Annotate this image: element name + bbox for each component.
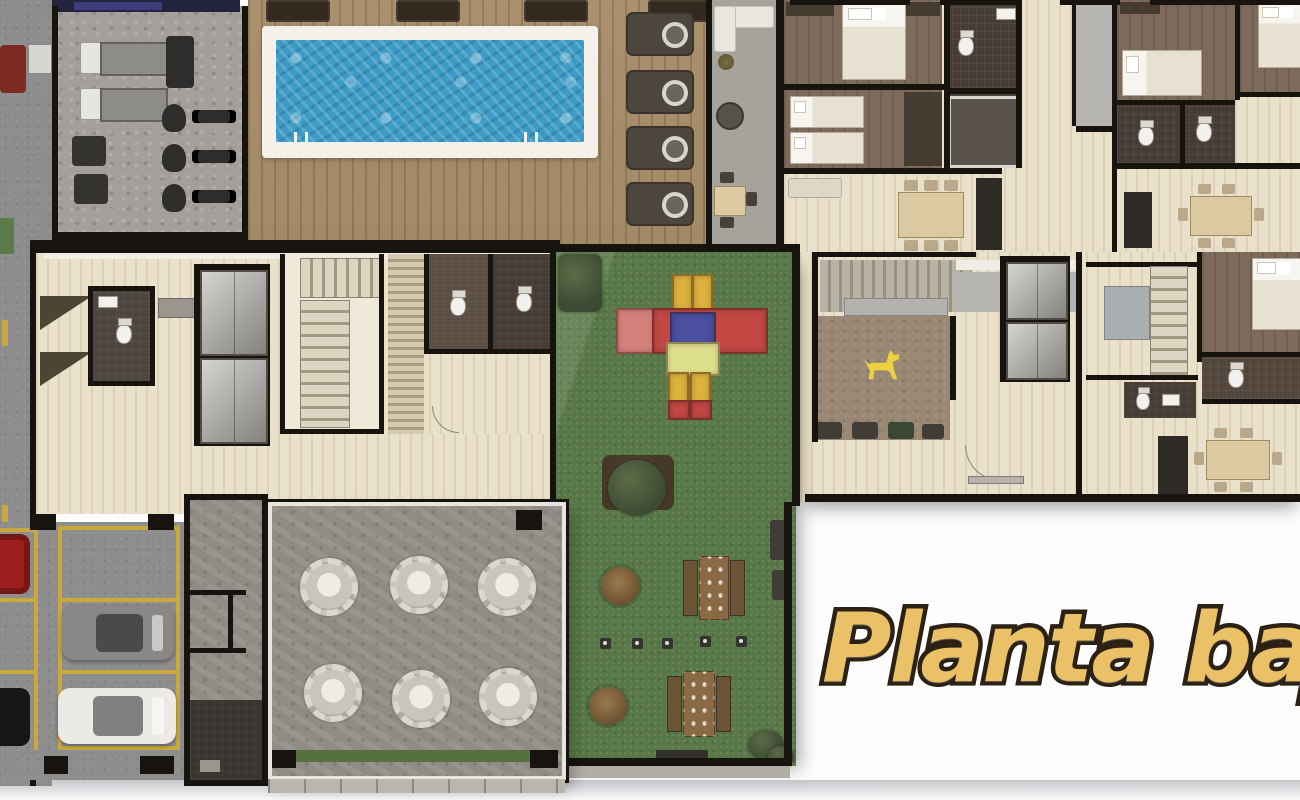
banquet-table [390,556,448,614]
chair [1272,452,1282,465]
chair [1222,184,1235,194]
sidewalk-tiles [268,779,565,793]
pier [44,756,68,774]
service-block [184,494,268,786]
bay-line [0,670,38,674]
door-leaf [968,476,1024,484]
banquet-table [300,558,358,616]
chair [1254,208,1264,221]
event-hall [268,502,566,780]
toilet [116,324,132,344]
sidewalk [560,766,790,778]
chair [720,217,734,228]
pool-deck [248,0,710,244]
grass-strip [274,750,556,762]
wall [184,780,268,786]
sun-lounger [524,0,588,22]
pier [148,514,174,530]
wall [280,254,285,434]
bed [1252,258,1300,330]
wall [812,252,818,442]
wall [190,648,246,653]
sofa [714,6,736,52]
plant [718,54,734,70]
pier [530,750,558,768]
bay-line [58,746,180,750]
treadmill-belt [100,42,168,76]
stairs [1150,266,1188,376]
corridor [1076,0,1112,126]
pier [30,514,56,530]
lane-mark [2,320,8,346]
bed [1258,4,1300,68]
play-bar-pink [616,308,656,354]
wall [556,244,800,252]
wall [150,286,155,386]
wall [1117,163,1300,169]
chair [924,240,938,251]
toilet [450,296,466,316]
weight-rack [166,36,194,88]
sink [1162,394,1180,406]
apartments-top [784,0,1300,252]
shower [948,96,1022,168]
stairs-lower-flight [300,300,350,428]
gym-machine [74,174,108,204]
elevator-cab [200,270,268,356]
picnic-table [683,671,715,737]
wall [1016,0,1022,168]
sun-lounger [626,12,694,56]
play-panel-lime [666,342,720,376]
wall [184,494,268,500]
bathroom [1202,357,1300,399]
sofa [788,178,842,198]
chair [1194,452,1204,465]
wardrobe [904,92,942,166]
picnic-bench [667,676,682,732]
wall [1086,375,1198,380]
chair [904,240,918,251]
bathroom [1124,382,1196,418]
dining-table [1190,196,1252,236]
pool-ladder [294,132,308,154]
dumbbell-bench [162,144,186,172]
toilet [1196,122,1212,142]
pier [516,510,542,530]
single-bed [790,132,864,164]
banquet-table [304,664,362,722]
wall [560,758,792,766]
wall [944,88,1022,94]
wall [784,502,792,764]
chair [1214,428,1227,438]
chair [904,180,918,191]
wall [1076,126,1112,132]
picnic-table [699,556,729,620]
platform [844,298,948,316]
bench [888,422,914,439]
car-black [0,688,30,746]
floorplan-render: Planta baja Planta baja [0,0,1300,800]
play-bar-yellow [692,274,713,312]
bench [852,422,878,439]
wall [88,286,154,291]
dumbbell-bar [192,190,236,203]
lounge-room [712,0,776,246]
perimeter-wall [805,494,1300,502]
wall [424,254,429,354]
chair [746,192,757,206]
bed [842,4,906,80]
sun-lounger [626,126,694,170]
bench [816,422,842,439]
wall [816,252,976,257]
dumbbell-bar [192,150,236,163]
bay-line [58,670,180,674]
wall [1240,92,1300,97]
closet [906,2,940,16]
terrace-block [800,252,1300,502]
gym-machine [72,136,106,166]
parking-lot [0,522,184,780]
wall [1235,0,1240,100]
street-bench [28,44,52,74]
wall [88,286,93,386]
chair [1178,208,1188,221]
ground-light [736,636,747,647]
stair-landing [1104,286,1150,340]
toilet [958,36,974,56]
sink [98,296,118,308]
gym-wall [52,6,58,238]
plan-title-text: Planta baja [822,592,1300,706]
sun-lounger [626,182,694,226]
chair [1198,238,1211,248]
wall [790,0,910,5]
play-foot-red [690,400,712,420]
picnic-bench [730,560,745,616]
wall [950,316,956,400]
dining-table [1206,440,1270,480]
kitchen-island [976,178,1002,250]
dumbbell-bar [192,110,236,123]
ground-light [700,636,711,647]
dumbbell-bench [162,104,186,132]
tree [608,460,666,516]
chair [1240,482,1253,492]
elevator-cab [1006,262,1068,320]
dining-table [898,192,964,238]
car-white [58,688,176,744]
wall [1180,105,1185,163]
plan-title: Planta baja Planta baja [822,592,1300,742]
treadmill [80,42,102,74]
bay-line [58,598,180,602]
wall [280,429,384,434]
toilet [1136,392,1150,410]
lintel-wall [30,240,560,253]
pier [272,750,296,768]
pier [140,756,174,774]
pool-edge-band-light [74,2,162,10]
wall [88,381,154,386]
round-table [589,687,627,725]
treadmill-belt [100,88,168,122]
lounge-wall [776,0,784,252]
wall [1060,0,1120,5]
table [714,186,746,216]
dog-icon [860,348,904,382]
banquet-table [478,558,536,616]
gym-area [52,6,248,238]
car-gray [62,606,174,660]
swimming-pool [276,40,584,142]
single-bed [790,96,864,128]
elevator-cab [200,358,268,444]
kitchen-island [1124,192,1152,248]
bay-line [176,526,180,750]
chair [1240,428,1253,438]
wall [1150,0,1300,5]
bay-line [0,598,38,602]
planter-bush [558,254,602,312]
chair [944,180,958,191]
sun-lounger [396,0,460,22]
round-table [601,567,639,605]
kitchen-island [1158,436,1188,496]
chair [1214,482,1227,492]
bench [922,424,944,439]
slat-screen [388,254,424,434]
wall [944,0,950,168]
playground-lawn [556,252,796,766]
sink [996,8,1016,20]
street-object [0,45,26,93]
chair [924,180,938,191]
bed [1122,50,1202,96]
wall [784,168,1002,174]
sun-lounger [266,0,330,22]
pool-ladder [524,132,538,154]
picnic-bench [683,560,698,616]
wall [228,590,233,652]
fixture [200,760,220,772]
bathroom [1117,105,1235,163]
wall [488,254,493,354]
ground-light [600,638,611,649]
wall [1076,252,1082,502]
toilet [516,292,532,312]
stairs-upper-flight [300,258,382,298]
banquet-table [479,668,537,726]
sun-lounger [626,70,694,114]
wall [190,590,246,595]
wall [1202,399,1300,404]
treadmill [80,88,102,120]
chair [1222,238,1235,248]
chair [720,172,734,183]
wall [1072,0,1076,126]
ground-light [662,638,673,649]
wall [379,254,384,434]
bay-line [34,526,38,750]
wall [940,0,1020,5]
wall [1197,252,1202,362]
car-red [0,534,30,594]
banquet-table [392,670,450,728]
gym-wall [52,232,248,240]
ground-light [632,638,643,649]
toilet [1138,126,1154,146]
chair [1198,184,1211,194]
dumbbell-bench [162,184,186,212]
picnic-bench [716,676,731,732]
wall [792,244,800,506]
coffee-table [716,102,744,130]
elevator-cab [1006,322,1068,380]
toilet [1228,368,1244,388]
play-bar-yellow [672,274,693,312]
play-foot-red [668,400,690,420]
chair [944,240,958,251]
grass-verge [0,218,14,254]
